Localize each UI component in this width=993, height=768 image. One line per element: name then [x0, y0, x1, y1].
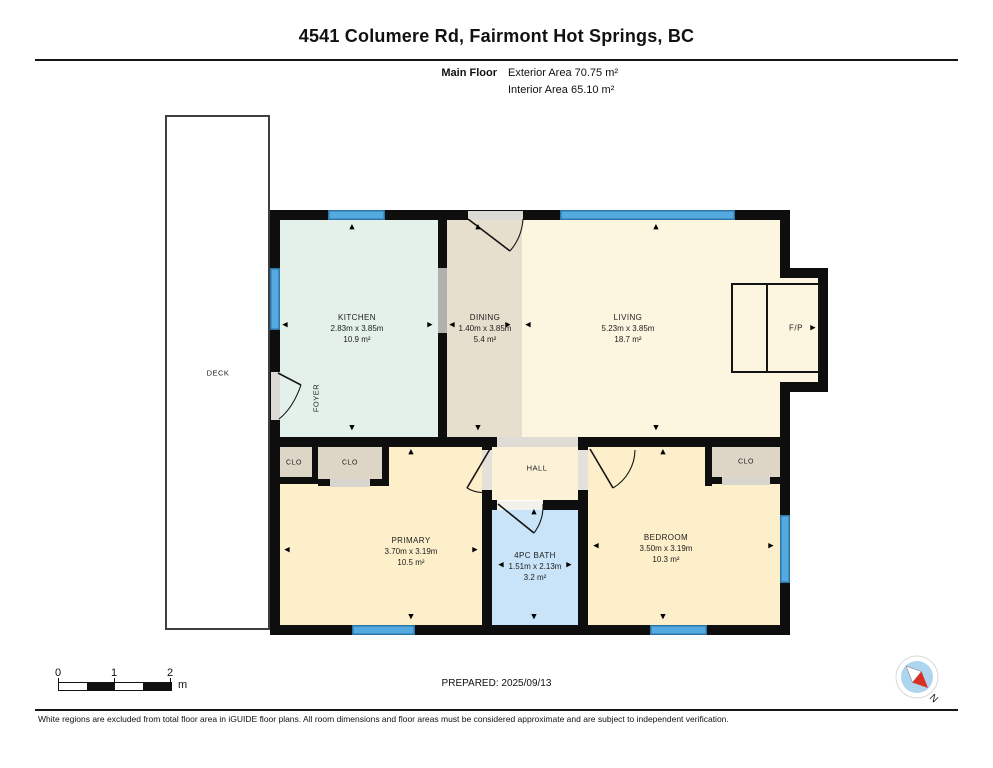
- interior-area: Interior Area 65.10 m²: [508, 84, 614, 96]
- deck-label: DECK: [207, 369, 230, 378]
- wall-clo2-bottom-b: [370, 479, 389, 486]
- dining-label: DINING 1.40m x 3.85m 5.4 m²: [459, 312, 512, 345]
- dimension-arrow: ▶: [768, 543, 773, 550]
- wall-gray-segment: [438, 268, 447, 333]
- dimension-arrow: ◀: [282, 322, 287, 329]
- floorplan-page: 4541 Columere Rd, Fairmont Hot Springs, …: [0, 0, 993, 768]
- dimension-arrow: ▼: [349, 425, 354, 432]
- dimension-arrow: ▲: [349, 224, 354, 231]
- disclaimer-text: White regions are excluded from total fl…: [38, 714, 729, 724]
- wall-mid-right: [580, 437, 785, 447]
- closet-3-label: CLO: [738, 459, 754, 466]
- dimension-arrow: ◀: [525, 322, 530, 329]
- living-label: LIVING 5.23m x 3.85m 18.7 m²: [602, 312, 655, 345]
- fireplace-divider: [766, 283, 768, 373]
- clo2-door: [330, 479, 370, 487]
- primary-label: PRIMARY 3.70m x 3.19m 10.5 m²: [385, 535, 438, 568]
- wall-clo2-bottom-a: [318, 479, 330, 486]
- dimension-arrow: ▲: [660, 449, 665, 456]
- dimension-arrow: ▲: [408, 449, 413, 456]
- wall-clo1-bottom: [270, 477, 318, 484]
- wall-bath-top-b: [543, 500, 578, 510]
- dimension-arrow: ▶: [505, 322, 510, 329]
- dimension-arrow: ▶: [472, 547, 477, 554]
- dimension-arrow: ▼: [653, 425, 658, 432]
- bath-label: 4PC BATH 1.51m x 2.13m 3.2 m²: [509, 550, 562, 583]
- dimension-arrow: ▶: [566, 562, 571, 569]
- dimension-arrow: ▼: [660, 614, 665, 621]
- wall-hall-left-a: [482, 437, 492, 450]
- dimension-arrow: ▶: [810, 325, 815, 332]
- dimension-arrow: ◀: [498, 562, 503, 569]
- page-title: 4541 Columere Rd, Fairmont Hot Springs, …: [0, 26, 993, 47]
- dimension-arrow: ◀: [593, 543, 598, 550]
- dimension-arrow: ▼: [408, 614, 413, 621]
- bedroom-label: BEDROOM 3.50m x 3.19m 10.3 m²: [640, 532, 693, 565]
- window-primary-bottom: [352, 625, 415, 635]
- wall-right-lower: [780, 382, 790, 635]
- hall-label: HALL: [527, 464, 548, 473]
- closet-1-label: CLO: [286, 460, 302, 467]
- kitchen-label: KITCHEN 2.83m x 3.85m 10.9 m²: [331, 312, 384, 345]
- closet-2-label: CLO: [342, 460, 358, 467]
- title-divider: [35, 59, 958, 61]
- window-kitchen-top: [328, 210, 385, 220]
- floor-label: Main Floor: [441, 67, 497, 79]
- dimension-arrow: ▲: [653, 224, 658, 231]
- window-bedroom-bottom: [650, 625, 707, 635]
- prepared-date: PREPARED: 2025/09/13: [0, 678, 993, 689]
- primary-door-opening: [482, 450, 492, 490]
- dimension-arrow: ▲: [531, 509, 536, 516]
- wall-bottom: [270, 625, 790, 635]
- dimension-arrow: ▼: [475, 425, 480, 432]
- wall-hall-right-a: [578, 437, 588, 450]
- hall-opening: [497, 437, 580, 447]
- window-bedroom-right: [780, 515, 790, 583]
- dimension-arrow: ◀: [449, 322, 454, 329]
- dimension-arrow: ▶: [427, 322, 432, 329]
- hall-room: [492, 447, 578, 500]
- wall-hall-right-b: [578, 490, 588, 635]
- wall-clo3-bottom-a: [705, 477, 722, 484]
- dimension-arrow: ▼: [531, 614, 536, 621]
- window-kitchen-left: [270, 268, 280, 330]
- wall-clo3-bottom-b: [770, 477, 785, 484]
- foyer-label: FOYER: [312, 384, 321, 412]
- fireplace-label: F/P: [789, 324, 803, 333]
- footer-divider: [35, 709, 958, 711]
- wall-hall-left-b: [482, 490, 492, 635]
- bedroom-door-opening: [578, 450, 588, 490]
- foyer-door-opening: [271, 372, 280, 420]
- window-living-top: [560, 210, 735, 220]
- fireplace-box: [731, 283, 820, 373]
- dimension-arrow: ◀: [284, 547, 289, 554]
- entry-door-opening: [468, 211, 523, 220]
- exterior-area: Exterior Area 70.75 m²: [508, 67, 618, 79]
- compass-icon: N: [893, 654, 943, 706]
- clo3-door: [722, 477, 770, 485]
- dimension-arrow: ▲: [475, 224, 480, 231]
